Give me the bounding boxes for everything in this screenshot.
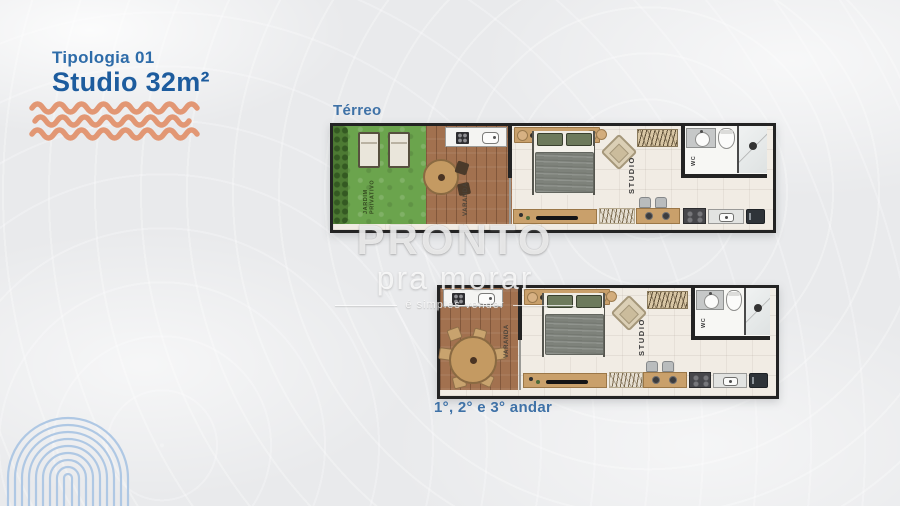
fingerprint-icon — [0, 411, 140, 506]
wc-room: WC — [695, 288, 770, 336]
fridge — [749, 373, 768, 388]
divider — [513, 305, 575, 306]
plate-icon — [662, 212, 670, 220]
dining-chair — [646, 361, 658, 372]
dining-chair — [655, 197, 667, 208]
dining-chair — [662, 361, 674, 372]
wc-sink — [696, 290, 724, 310]
wc-label: WC — [691, 152, 697, 166]
double-bed — [532, 131, 595, 195]
page-title: Studio 32m² — [52, 67, 210, 98]
pouf — [606, 291, 617, 302]
garden-bushes — [333, 126, 348, 224]
fridge — [746, 209, 765, 224]
wall — [681, 174, 767, 178]
wc-sink — [686, 128, 716, 148]
kitchen-sink-icon — [723, 377, 738, 386]
plate-icon — [645, 212, 653, 220]
duvet — [545, 314, 604, 355]
watermark-sub: pra morar — [315, 260, 595, 297]
pillow — [566, 133, 592, 146]
glass-door — [519, 340, 521, 390]
rack — [609, 372, 643, 388]
balcony-counter — [445, 127, 507, 147]
divider — [335, 305, 397, 306]
dining-table — [643, 372, 687, 388]
balcony-table — [449, 336, 497, 384]
sink-icon — [482, 132, 499, 144]
shower — [744, 288, 770, 335]
typology-label: Tipologia 01 — [52, 48, 154, 68]
studio-label: STUDIO — [628, 160, 637, 194]
dining-table — [636, 208, 680, 224]
wc-label: WC — [701, 314, 707, 328]
wall — [691, 336, 770, 340]
decor — [529, 377, 533, 381]
rack — [599, 208, 635, 224]
plant-icon — [536, 380, 540, 384]
floor-label-upper: 1°, 2° e 3° andar — [434, 399, 552, 416]
brand-waves-icon — [28, 99, 206, 147]
cooktop-icon — [456, 132, 469, 144]
shelf-unit — [637, 129, 678, 147]
sideboard — [523, 373, 607, 388]
wc-room: WC — [685, 126, 767, 174]
watermark-tagline-row: é simples vender — [315, 299, 595, 311]
sun-lounger — [358, 132, 380, 168]
studio-label: STUDIO — [638, 322, 647, 356]
kitchen-sink-icon — [719, 213, 734, 222]
balcony-label: VARANDA — [504, 314, 511, 358]
pouf — [596, 129, 607, 140]
balcony-table — [423, 159, 459, 195]
stove — [683, 208, 706, 224]
watermark-tagline: é simples vender — [405, 299, 504, 311]
toilet — [718, 128, 735, 149]
kitchen-counter — [708, 209, 744, 224]
shelf-unit — [647, 291, 688, 309]
shower — [737, 126, 767, 173]
tv-icon — [546, 380, 588, 384]
balcony-label: VARANDA — [463, 174, 470, 216]
garden-area: JARDIM PRIVATIVO — [333, 126, 426, 224]
kitchen-counter — [713, 373, 747, 388]
wall — [508, 126, 512, 178]
floor-label-ground: Térreo — [333, 102, 382, 119]
toilet — [726, 290, 742, 311]
sun-lounger — [388, 132, 410, 168]
side-table — [517, 130, 528, 141]
watermark-brand: PRONTO — [315, 216, 595, 264]
watermark: PRONTO pra morar é simples vender — [315, 216, 595, 311]
garden-label: JARDIM PRIVATIVO — [363, 166, 379, 214]
pillow — [537, 133, 563, 146]
slide: Tipologia 01 Studio 32m² Térreo JARDIM P… — [0, 0, 900, 506]
plate-icon — [669, 376, 677, 384]
stove — [689, 372, 711, 388]
plate-icon — [652, 376, 660, 384]
dining-chair — [639, 197, 651, 208]
duvet — [535, 152, 594, 193]
